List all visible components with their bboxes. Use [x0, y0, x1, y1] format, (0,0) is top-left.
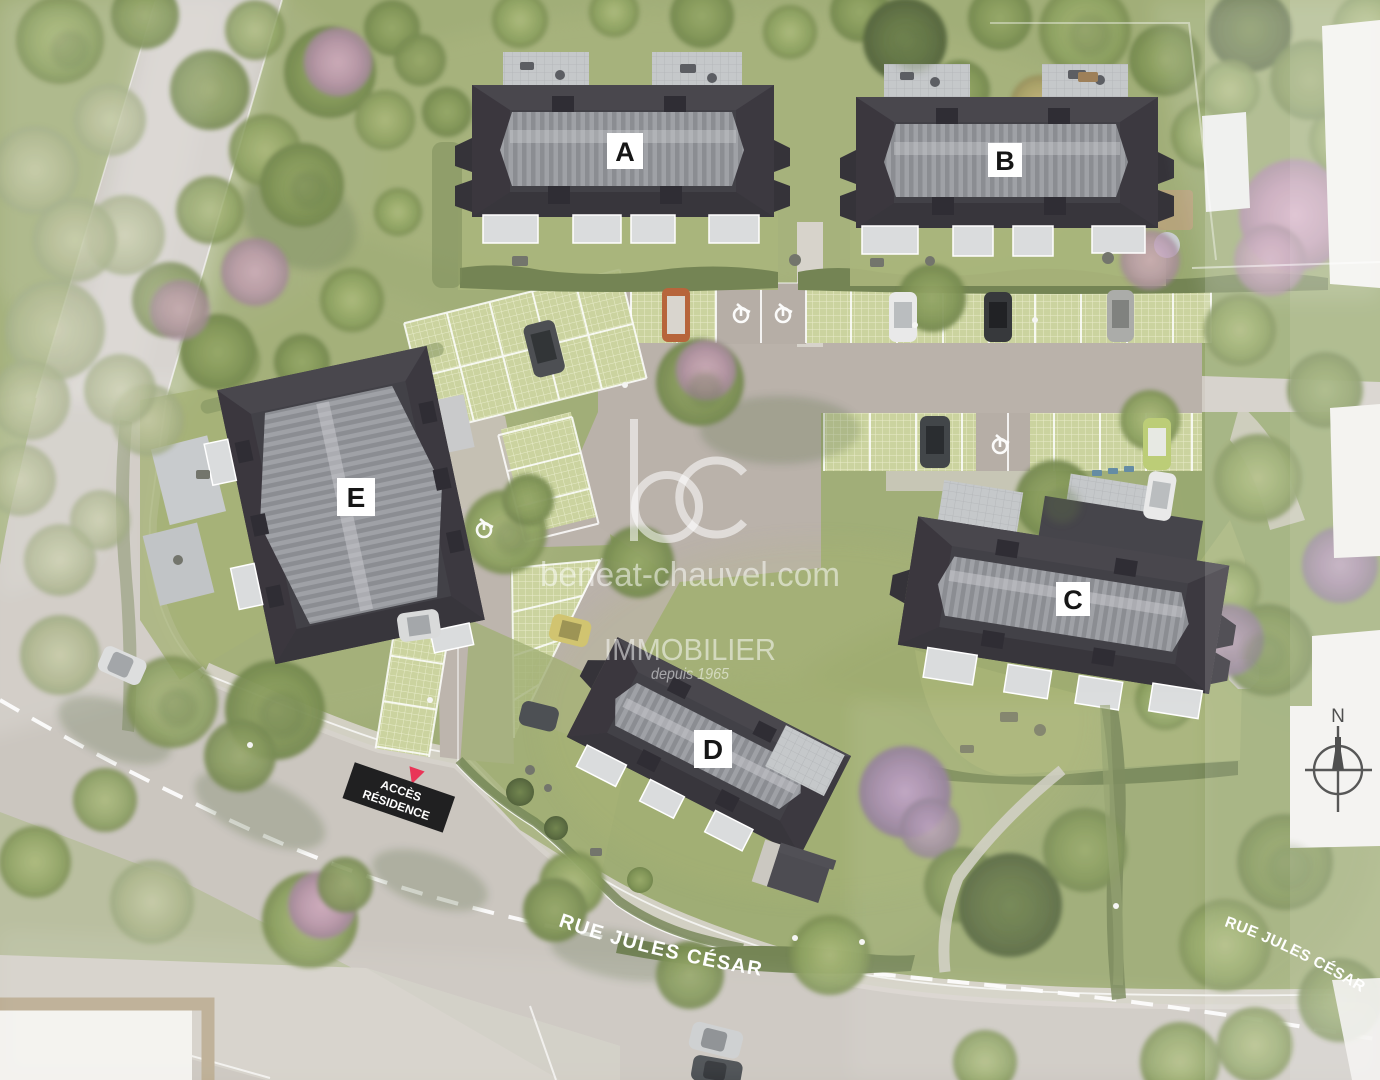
svg-text:depuis 1965: depuis 1965 [651, 666, 729, 683]
svg-text:IMMOBILIER: IMMOBILIER [604, 632, 776, 667]
svg-text:beneat-chauvel.com: beneat-chauvel.com [540, 556, 840, 594]
